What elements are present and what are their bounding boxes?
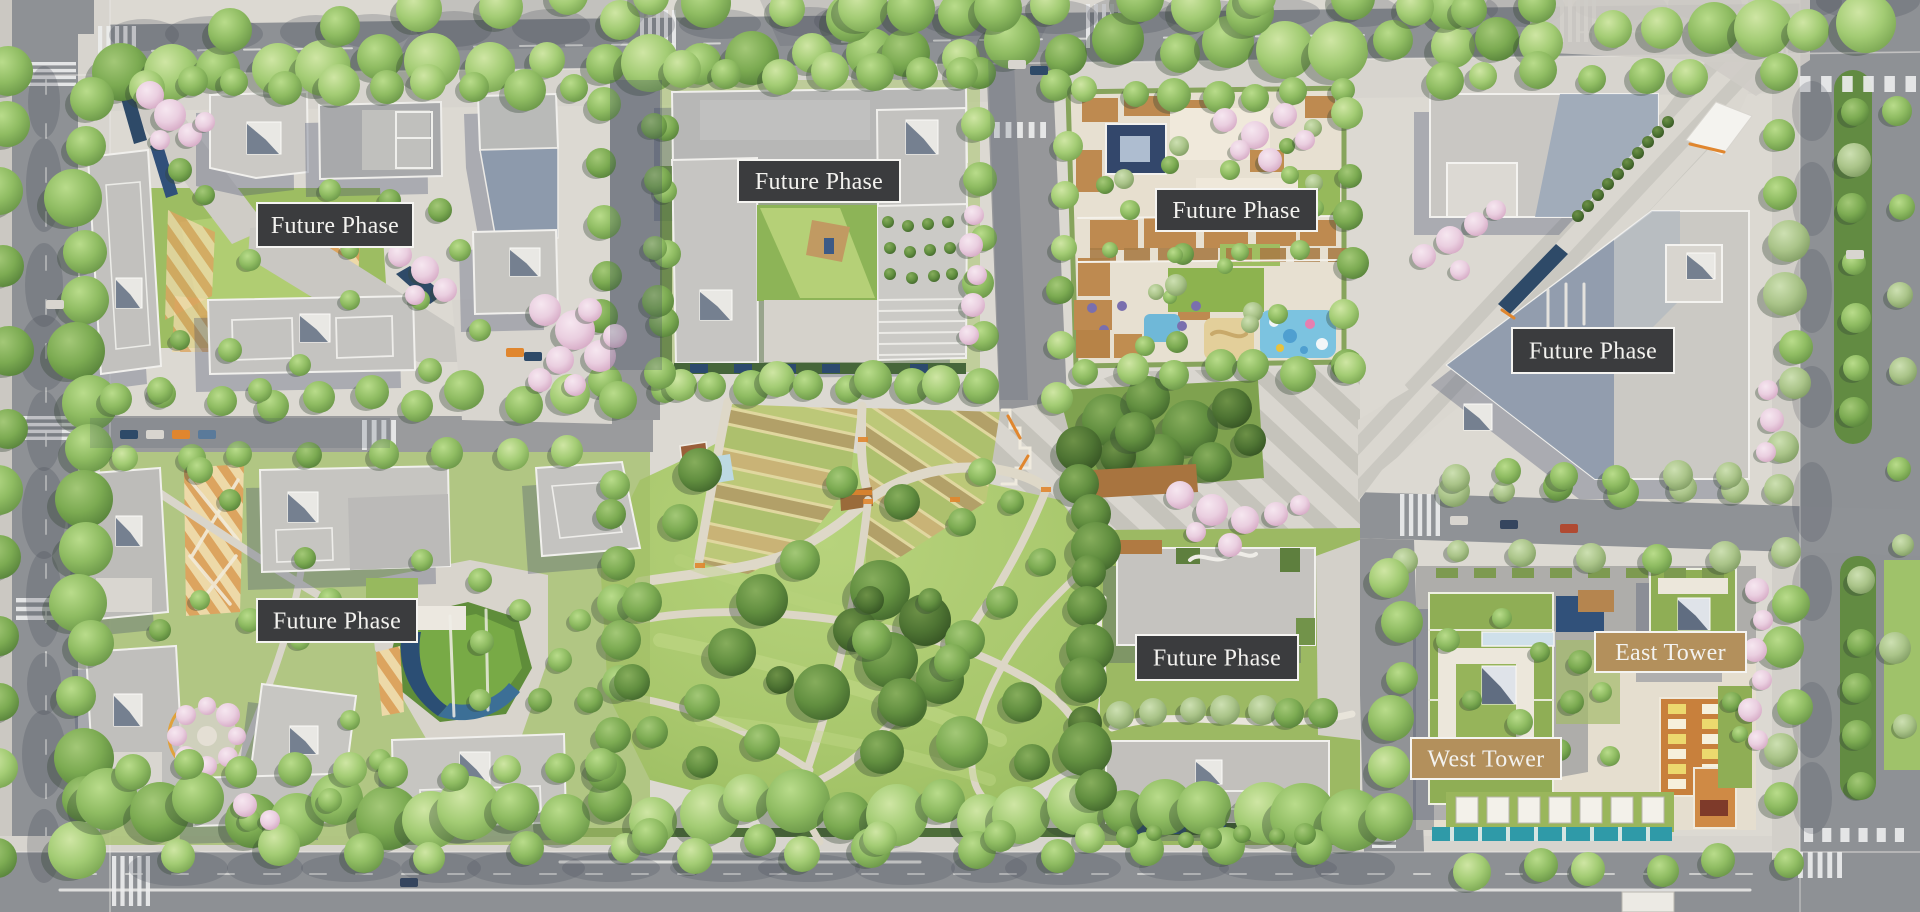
svg-text:Future Phase: Future Phase [271,213,399,239]
svg-text:East Tower: East Tower [1615,640,1726,666]
svg-text:Future Phase: Future Phase [273,609,401,635]
svg-text:Future Phase: Future Phase [1172,198,1300,224]
svg-text:West Tower: West Tower [1428,747,1545,773]
svg-text:Future Phase: Future Phase [1153,646,1281,672]
svg-text:Future Phase: Future Phase [1529,339,1657,365]
svg-text:Future Phase: Future Phase [755,169,883,195]
